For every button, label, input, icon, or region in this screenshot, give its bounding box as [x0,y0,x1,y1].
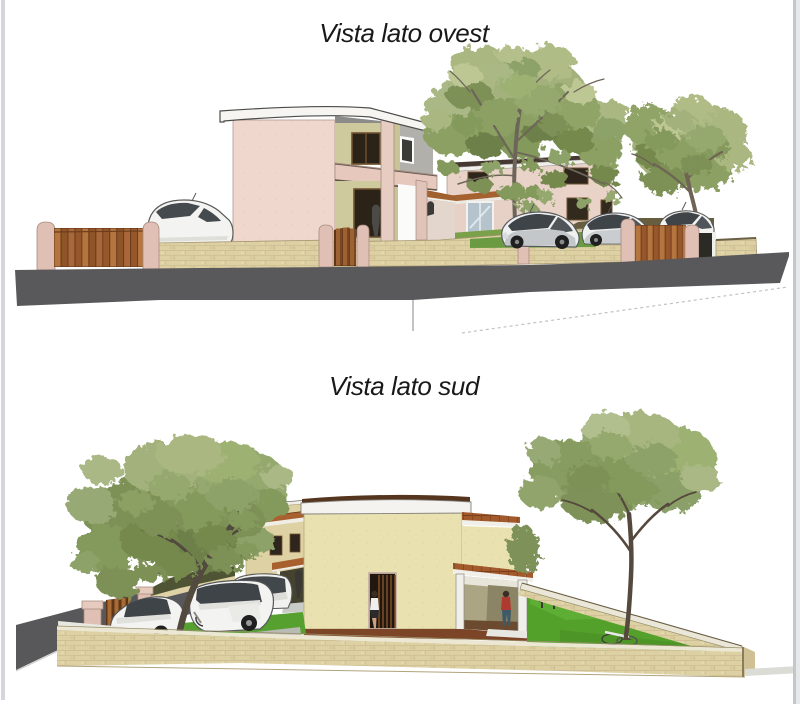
svg-text:Vista lato ovest: Vista lato ovest [319,18,491,48]
svg-text:Vista lato sud: Vista lato sud [329,371,481,401]
